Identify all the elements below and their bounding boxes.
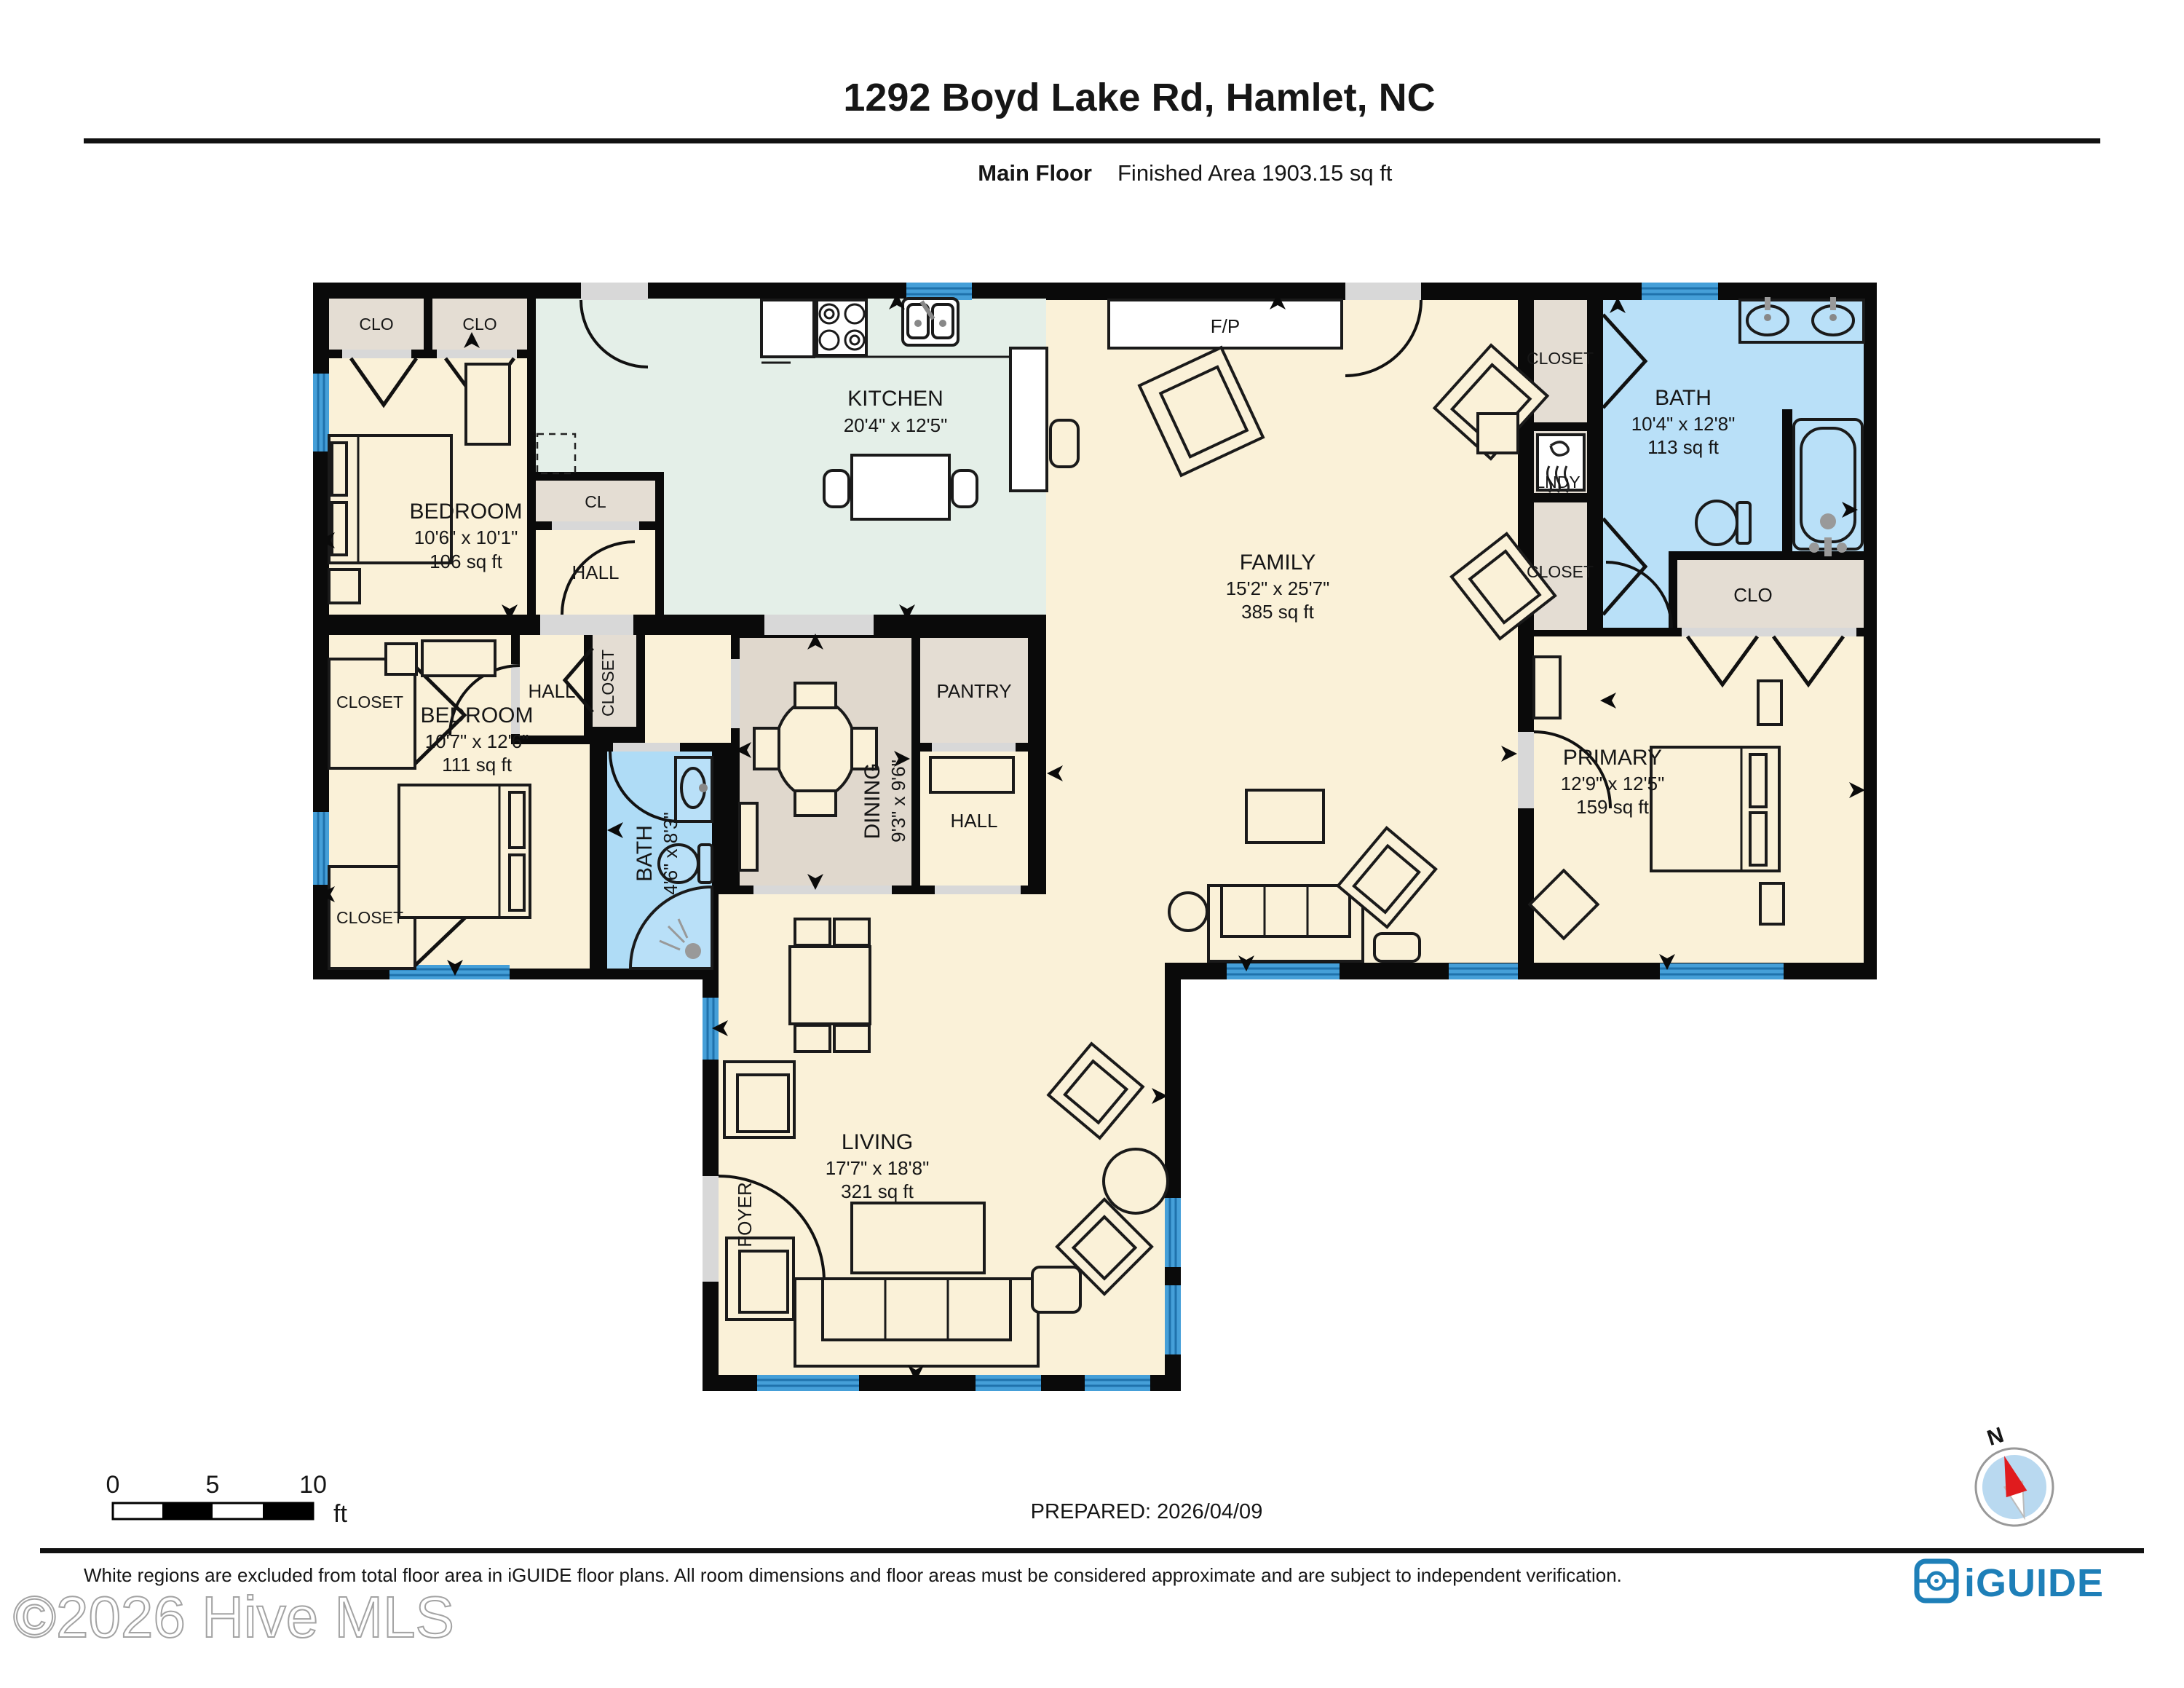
scale-tick-5: 5	[206, 1471, 220, 1499]
armchair-icon	[724, 1062, 794, 1137]
nightstand-icon	[386, 644, 416, 674]
sideboard-icon	[740, 803, 757, 870]
room-corridor	[645, 635, 731, 743]
label-closet-3: CLOSET	[598, 650, 617, 717]
dresser-icon	[466, 364, 510, 444]
fridge-icon	[761, 300, 814, 357]
svg-text:113 sq ft: 113 sq ft	[1647, 436, 1720, 458]
label-foyer: FOYER	[734, 1182, 756, 1247]
svg-text:111 sq ft: 111 sq ft	[442, 754, 513, 776]
side-table-icon	[1051, 420, 1078, 467]
kitchen-counter	[1010, 348, 1047, 491]
label-closet-b2-bottom: CLOSET	[336, 908, 403, 927]
iguide-logo: iGUIDE	[1917, 1561, 2104, 1605]
toilet-icon	[1696, 501, 1750, 545]
dresser-icon	[422, 641, 495, 676]
svg-text:321 sq ft: 321 sq ft	[841, 1180, 914, 1202]
svg-text:4'6" x 8'3": 4'6" x 8'3"	[660, 812, 681, 895]
footer-rule	[40, 1548, 2144, 1553]
scale-tick-0: 0	[106, 1471, 120, 1499]
bathtub-icon	[1794, 419, 1862, 556]
prepared-date: PREPARED: 2026/04/09	[1031, 1500, 1263, 1523]
scale-bar: 0 5 10 ft	[106, 1471, 348, 1528]
sofa-icon	[1208, 886, 1363, 961]
label-lndy: LNDY	[1535, 473, 1580, 492]
label-closet-col-bottom: CLOSET	[1527, 562, 1594, 581]
floor-plan-page: 1292 Boyd Lake Rd, Hamlet, NC Main Floor…	[0, 0, 2184, 1688]
bed-icon	[1651, 747, 1779, 871]
label-bath-main: BATH	[1655, 386, 1712, 410]
chair-icon	[754, 728, 779, 769]
round-table-icon	[1104, 1149, 1168, 1213]
double-vanity-icon	[1740, 297, 1864, 342]
footer-disclaimer: White regions are excluded from total fl…	[84, 1564, 1622, 1586]
chair-icon	[795, 683, 836, 708]
label-pantry: PANTRY	[936, 680, 1011, 702]
svg-text:10'7" x 12'6": 10'7" x 12'6"	[425, 730, 529, 752]
chair-icon	[795, 791, 836, 816]
label-living: LIVING	[842, 1130, 913, 1154]
scale-unit: ft	[333, 1500, 347, 1528]
finished-area-label: Finished Area 1903.15 sq ft	[1117, 160, 1393, 186]
svg-text:17'7" x 18'8": 17'7" x 18'8"	[826, 1157, 930, 1179]
svg-text:15'2" x 25'7": 15'2" x 25'7"	[1226, 577, 1330, 599]
breakfast-table-icon	[790, 919, 870, 1052]
mls-watermark: ©2026 Hive MLS	[13, 1585, 454, 1649]
label-kitchen: KITCHEN	[847, 387, 943, 411]
nightstand-icon	[329, 569, 360, 603]
label-primary: PRIMARY	[1563, 746, 1662, 770]
hall-bench-icon	[930, 757, 1013, 792]
dining-table-icon	[775, 699, 855, 798]
scale-tick-10: 10	[299, 1471, 327, 1499]
svg-text:159 sq ft: 159 sq ft	[1576, 796, 1650, 818]
label-hall-1: HALL	[571, 561, 619, 583]
armchair-icon	[727, 1238, 794, 1320]
dresser-icon	[1534, 657, 1560, 718]
label-bedroom-back: BEDROOM	[420, 703, 533, 727]
side-table-icon	[1032, 1267, 1080, 1312]
round-table-icon	[1169, 893, 1207, 931]
label-dining: DINING	[860, 763, 885, 840]
label-cl: CL	[585, 492, 606, 511]
kitchen-sink-icon	[903, 299, 958, 345]
label-clo-1: CLO	[359, 315, 393, 334]
label-clo-2: CLO	[462, 315, 496, 334]
side-table-icon	[1478, 414, 1518, 453]
svg-text:385 sq ft: 385 sq ft	[1241, 601, 1315, 623]
title-rule	[84, 138, 2100, 143]
nightstand-icon	[1758, 681, 1781, 725]
svg-text:9'3" x 9'6": 9'3" x 9'6"	[887, 760, 909, 843]
svg-text:106 sq ft: 106 sq ft	[430, 551, 503, 572]
table-icon	[1246, 790, 1324, 843]
label-fireplace: F/P	[1211, 315, 1240, 337]
compass-north-label: N	[1985, 1423, 2007, 1451]
compass-icon: N	[1966, 1423, 2063, 1536]
iguide-logo-text: iGUIDE	[1964, 1561, 2104, 1605]
ottoman-icon	[1374, 934, 1420, 961]
svg-text:10'4" x 12'8": 10'4" x 12'8"	[1631, 413, 1736, 435]
label-family: FAMILY	[1240, 551, 1315, 575]
label-hall-2: HALL	[528, 680, 575, 702]
floor-label: Main Floor	[978, 160, 1092, 186]
bed-icon	[399, 785, 530, 918]
label-closet-col-top: CLOSET	[1527, 349, 1594, 368]
svg-text:12'9" x 12'5": 12'9" x 12'5"	[1561, 773, 1665, 794]
label-hall-3: HALL	[950, 810, 997, 832]
label-closet-b2-top: CLOSET	[336, 693, 403, 711]
sofa-icon	[795, 1279, 1038, 1366]
stove-icon	[817, 300, 866, 355]
svg-text:10'6" x 10'1": 10'6" x 10'1"	[414, 526, 518, 548]
page-title: 1292 Boyd Lake Rd, Hamlet, NC	[843, 76, 1435, 119]
label-clo-primary: CLO	[1733, 584, 1772, 606]
coffee-table-icon	[852, 1203, 984, 1273]
svg-text:20'4" x 12'5": 20'4" x 12'5"	[844, 414, 948, 436]
label-bedroom-front: BEDROOM	[409, 500, 522, 524]
sink-icon	[676, 757, 712, 821]
nightstand-icon	[1760, 883, 1784, 924]
label-bath-hall: BATH	[633, 825, 657, 882]
